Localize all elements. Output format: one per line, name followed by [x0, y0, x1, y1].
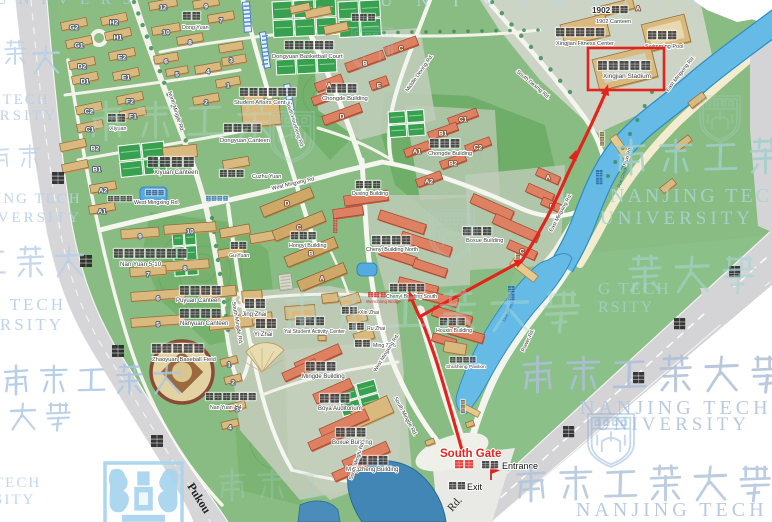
svg-text:E1: E1 [122, 75, 131, 82]
svg-text:Puyuan Canteen: Puyuan Canteen [176, 298, 221, 304]
svg-text:TECH: TECH [0, 475, 41, 491]
svg-text:Xingjian Stadium: Xingjian Stadium [603, 73, 651, 80]
svg-text:1902 Canteen: 1902 Canteen [596, 19, 631, 25]
svg-text:8: 8 [183, 266, 187, 273]
svg-text:G2: G2 [69, 25, 78, 32]
svg-text:Zhaoyuan Baseball Field: Zhaoyuan Baseball Field [152, 357, 216, 363]
svg-text:C1: C1 [459, 117, 468, 124]
svg-text:F1: F1 [129, 114, 137, 121]
svg-text:6: 6 [164, 59, 168, 66]
svg-text:Chongde Building: Chongde Building [428, 151, 472, 157]
svg-text:D1: D1 [81, 79, 90, 86]
svg-text:RSITY: RSITY [598, 299, 654, 316]
svg-text:Dongyuan Basketball Court: Dongyuan Basketball Court [272, 54, 343, 60]
svg-text:Boya Auditorium: Boya Auditorium [318, 406, 362, 412]
svg-text:Shusheng Pavilion: Shusheng Pavilion [446, 364, 486, 370]
svg-text:10: 10 [162, 30, 170, 37]
svg-text:Exit: Exit [467, 482, 483, 492]
svg-text:NANJING TECH: NANJING TECH [0, 92, 50, 108]
svg-text:Xiyuan Canteen: Xiyuan Canteen [154, 169, 199, 176]
svg-text:8: 8 [188, 40, 192, 47]
svg-text:9: 9 [138, 234, 142, 241]
svg-text:B1: B1 [439, 131, 448, 138]
svg-text:F2: F2 [126, 99, 134, 106]
svg-text:C: C [520, 249, 525, 256]
svg-text:10: 10 [186, 229, 194, 236]
svg-text:C: C [399, 46, 404, 53]
svg-text:A: A [327, 83, 332, 90]
svg-text:1: 1 [227, 362, 231, 369]
svg-text:Mingde Building: Mingde Building [302, 374, 345, 380]
svg-text:NANJING TECH: NANJING TECH [610, 185, 772, 207]
svg-text:E2: E2 [118, 55, 127, 62]
svg-text:B1: B1 [93, 167, 102, 174]
svg-text:Duxing Building: Duxing Building [352, 191, 388, 197]
svg-text:B: B [309, 251, 314, 258]
svg-text:Entrance: Entrance [502, 461, 538, 471]
svg-text:Nanyuan Canteen: Nanyuan Canteen [180, 321, 228, 327]
svg-text:7: 7 [146, 272, 150, 279]
svg-text:G1: G1 [74, 43, 83, 50]
svg-text:Dong Yuan: Dong Yuan [182, 25, 209, 31]
svg-text:C2: C2 [474, 145, 483, 152]
svg-text:U N I V E R S I T Y: U N I V E R S I T Y [380, 0, 708, 10]
svg-text:Chenyi Building North: Chenyi Building North [366, 247, 418, 253]
svg-text:3: 3 [235, 407, 239, 414]
svg-text:Ru Zhai: Ru Zhai [367, 326, 385, 332]
svg-text:Nan Yuan 5-10: Nan Yuan 5-10 [120, 261, 162, 268]
svg-text:H2: H2 [110, 20, 119, 27]
svg-text:Hongyi Building: Hongyi Building [289, 243, 326, 249]
svg-text:Boxue Building: Boxue Building [466, 238, 503, 244]
svg-text:D2: D2 [78, 64, 87, 71]
svg-text:1: 1 [226, 83, 230, 90]
svg-text:Xingjian Fitness Center: Xingjian Fitness Center [556, 41, 614, 47]
svg-text:U N I V E R S: U N I V E R S [0, 0, 135, 8]
svg-text:4: 4 [228, 425, 232, 432]
svg-text:9: 9 [204, 4, 208, 11]
svg-text:West Mingxing Rd.: West Mingxing Rd. [134, 200, 179, 206]
svg-text:UNIVERSITY: UNIVERSITY [0, 315, 64, 334]
svg-text:Yai Student Activity Center: Yai Student Activity Center [284, 329, 345, 335]
svg-text:4: 4 [206, 69, 210, 76]
svg-text:Gu Yuan: Gu Yuan [229, 253, 249, 259]
svg-text:A: A [546, 175, 551, 182]
svg-text:UNIVERSITY: UNIVERSITY [0, 210, 82, 226]
svg-text:SITY: SITY [0, 492, 35, 508]
svg-text:5: 5 [175, 72, 179, 79]
svg-text:B2: B2 [449, 161, 458, 168]
svg-text:2: 2 [204, 100, 208, 107]
svg-text:Cuzhu Yuan: Cuzhu Yuan [252, 174, 281, 180]
svg-text:A2: A2 [425, 179, 434, 186]
svg-text:12: 12 [159, 5, 167, 12]
svg-text:Dongyuan Canteen: Dongyuan Canteen [220, 138, 270, 144]
svg-text:A2: A2 [99, 188, 108, 195]
svg-text:B2: B2 [91, 146, 100, 153]
svg-text:A: A [320, 276, 325, 283]
svg-text:UNIVERSITY: UNIVERSITY [600, 208, 754, 229]
svg-text:G TECH: G TECH [598, 279, 671, 298]
svg-text:C: C [297, 225, 302, 232]
svg-text:Jing Zhai: Jing Zhai [242, 312, 266, 318]
svg-text:South Gate: South Gate [440, 448, 501, 460]
svg-text:5: 5 [156, 322, 160, 329]
svg-text:NANJING TECH: NANJING TECH [576, 499, 768, 521]
svg-text:2: 2 [231, 380, 235, 387]
svg-text:D: D [285, 201, 290, 208]
svg-text:E: E [377, 83, 382, 90]
svg-text:Yi Zhai: Yi Zhai [254, 332, 272, 338]
svg-text:6: 6 [156, 296, 160, 303]
svg-text:NANJING TECH: NANJING TECH [0, 191, 82, 207]
svg-text:A1: A1 [98, 209, 107, 216]
svg-text:H1: H1 [114, 35, 123, 42]
svg-text:3: 3 [229, 58, 233, 65]
svg-text:Chongde Building: Chongde Building [322, 96, 368, 102]
svg-text:UNIVERSITY: UNIVERSITY [0, 108, 58, 124]
svg-text:7: 7 [219, 18, 223, 25]
svg-text:D: D [340, 114, 345, 121]
svg-text:A1: A1 [413, 149, 422, 156]
svg-text:NANJING TECH: NANJING TECH [0, 295, 66, 314]
